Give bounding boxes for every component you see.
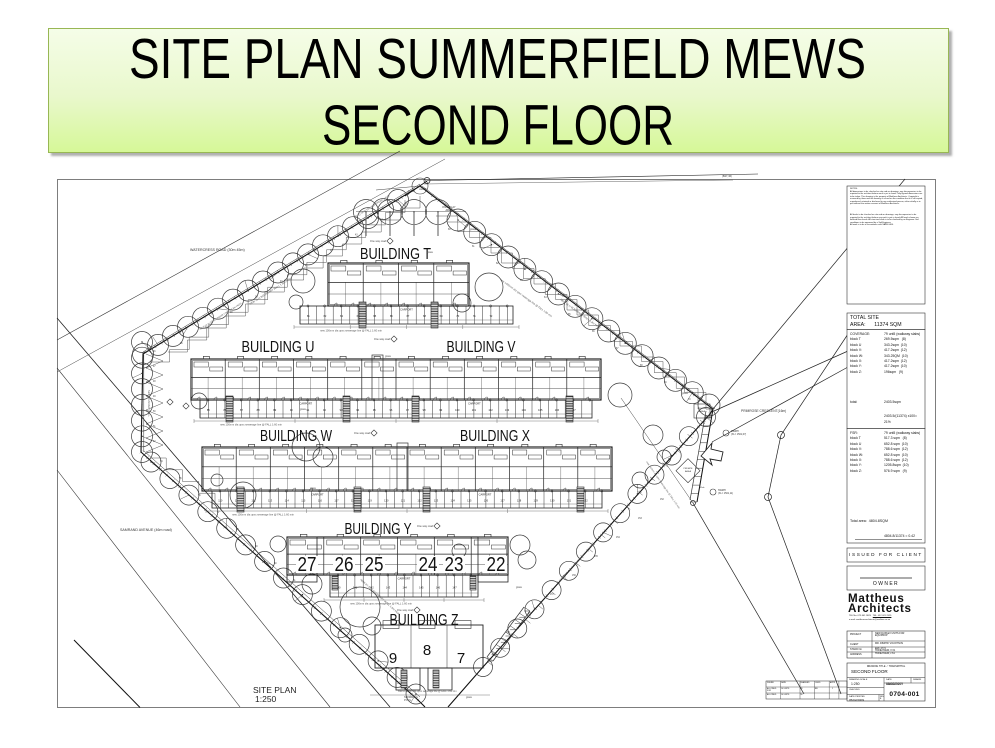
svg-text:146: 146 (436, 586, 441, 590)
svg-text:113: 113 (268, 499, 273, 503)
svg-text:grass: grass (470, 228, 477, 231)
svg-text:9: 9 (389, 650, 397, 667)
svg-text:BUILDING Y: BUILDING Y (345, 521, 412, 538)
svg-text:27: 27 (298, 554, 317, 576)
svg-text:grass: grass (300, 408, 307, 411)
svg-text:PRIVATE: PRIVATE (683, 467, 693, 470)
svg-text:ALAPA: ALAPA (419, 188, 427, 191)
svg-text:One way road: One way road (354, 431, 371, 435)
svg-text:24: 24 (419, 554, 438, 576)
svg-text:CARPORT: CARPORT (479, 493, 492, 497)
svg-text:BUILDING W: BUILDING W (260, 428, 333, 445)
svg-text:grass: grass (466, 696, 473, 699)
svg-text:max 1000mm dia upvc sewerage l: max 1000mm dia upvc sewerage line @ FALL… (398, 690, 457, 693)
svg-text:grass: grass (427, 251, 434, 254)
svg-text:124: 124 (451, 499, 456, 503)
svg-text:100: 100 (455, 408, 460, 412)
svg-text:(XL= 1501,07): (XL= 1501,07) (731, 433, 746, 436)
svg-text:123: 123 (434, 499, 439, 503)
svg-text:new 100mm dia upvc sewerage li: new 100mm dia upvc sewerage line @ FALL … (232, 513, 294, 517)
svg-text:115: 115 (301, 499, 306, 503)
svg-text:CARPORT: CARPORT (398, 577, 411, 581)
svg-text:grass: grass (516, 586, 523, 589)
svg-text:128: 128 (517, 499, 522, 503)
svg-text:One way road: One way road (374, 337, 391, 341)
svg-text:130: 130 (550, 499, 555, 503)
svg-text:122: 122 (417, 499, 422, 503)
svg-text:116: 116 (318, 499, 323, 503)
svg-text:CARPORT: CARPORT (400, 308, 413, 312)
svg-text:WATERCRESS ROAD (30m 45m): WATERCRESS ROAD (30m 45m) (190, 248, 245, 252)
svg-text:BUILDING V: BUILDING V (447, 339, 516, 356)
svg-text:142: 142 (369, 586, 374, 590)
svg-text:106: 106 (555, 408, 560, 412)
svg-text:CARPORT: CARPORT (299, 402, 312, 406)
svg-text:141: 141 (353, 586, 358, 590)
svg-text:26: 26 (335, 554, 354, 576)
svg-text:105: 105 (538, 408, 543, 412)
svg-text:AREA: AREA (699, 410, 705, 413)
svg-text:grass: grass (385, 355, 392, 358)
svg-text:129: 129 (534, 499, 539, 503)
svg-text:145: 145 (419, 586, 424, 590)
svg-text:SAMRAND AVENUE (46m road): SAMRAND AVENUE (46m road) (120, 528, 172, 532)
svg-text:AREA: AREA (685, 470, 691, 473)
svg-text:new 100mm dia upvc sewerage li: new 100mm dia upvc sewerage line @ FALL … (320, 329, 382, 333)
svg-text:CARPORT: CARPORT (311, 493, 324, 497)
svg-text:143: 143 (386, 586, 391, 590)
svg-text:144: 144 (403, 586, 408, 590)
svg-text:125: 125 (467, 499, 472, 503)
svg-text:22: 22 (487, 554, 506, 576)
svg-text:One way road: One way road (370, 239, 387, 243)
svg-text:BUILDING U: BUILDING U (242, 339, 315, 356)
svg-text:104: 104 (522, 408, 527, 412)
svg-text:Klub: Klub (700, 487, 705, 489)
svg-text:127: 127 (500, 499, 505, 503)
svg-text:new 100mm dia upvc sewerage li: new 100mm dia upvc sewerage line @ FALL … (350, 602, 412, 606)
svg-text:110: 110 (218, 499, 223, 503)
svg-text:SITE PLAN SUMMERFIELD MEWS: SITE PLAN SUMMERFIELD MEWS (129, 27, 866, 90)
svg-text:BUILDING T: BUILDING T (360, 246, 431, 263)
svg-text:BUILDING X: BUILDING X (460, 428, 530, 445)
svg-text:(XL= 1501,11): (XL= 1501,11) (718, 492, 733, 495)
svg-text:25: 25 (365, 554, 384, 576)
svg-text:NEW BOUNDARY WALL: NEW BOUNDARY WALL (147, 390, 150, 417)
svg-text:121: 121 (401, 499, 406, 503)
svg-text:120: 120 (384, 499, 389, 503)
svg-text:114: 114 (285, 499, 290, 503)
svg-text:119: 119 (368, 499, 373, 503)
svg-text:102: 102 (488, 408, 493, 412)
svg-text:POOL: POOL (404, 698, 412, 702)
svg-text:103: 103 (505, 408, 510, 412)
svg-text:CARPORT: CARPORT (468, 402, 481, 406)
svg-text:131: 131 (567, 499, 572, 503)
svg-text:147: 147 (452, 586, 457, 590)
svg-text:7: 7 (457, 650, 465, 667)
svg-text:AREA: AREA (445, 208, 452, 212)
svg-text:8: 8 (423, 642, 431, 659)
svg-text:117: 117 (334, 499, 339, 503)
svg-text:PRIMROSE CRESCENT(16m): PRIMROSE CRESCENT(16m) (741, 409, 786, 413)
svg-text:101: 101 (472, 408, 477, 412)
svg-text:1:250: 1:250 (255, 694, 277, 704)
svg-text:grass: grass (682, 392, 689, 395)
svg-text:112: 112 (251, 499, 256, 503)
svg-text:One way road: One way road (417, 524, 434, 528)
svg-text:23: 23 (445, 554, 464, 576)
svg-text:new 100mm dia upvc sewerage li: new 100mm dia upvc sewerage line @ FALL … (220, 423, 282, 427)
svg-text:SECOND FLOOR: SECOND FLOOR (322, 94, 674, 157)
svg-text:126: 126 (484, 499, 489, 503)
svg-text:grass: grass (310, 487, 317, 490)
svg-text:REFUSE: REFUSE (698, 408, 707, 410)
